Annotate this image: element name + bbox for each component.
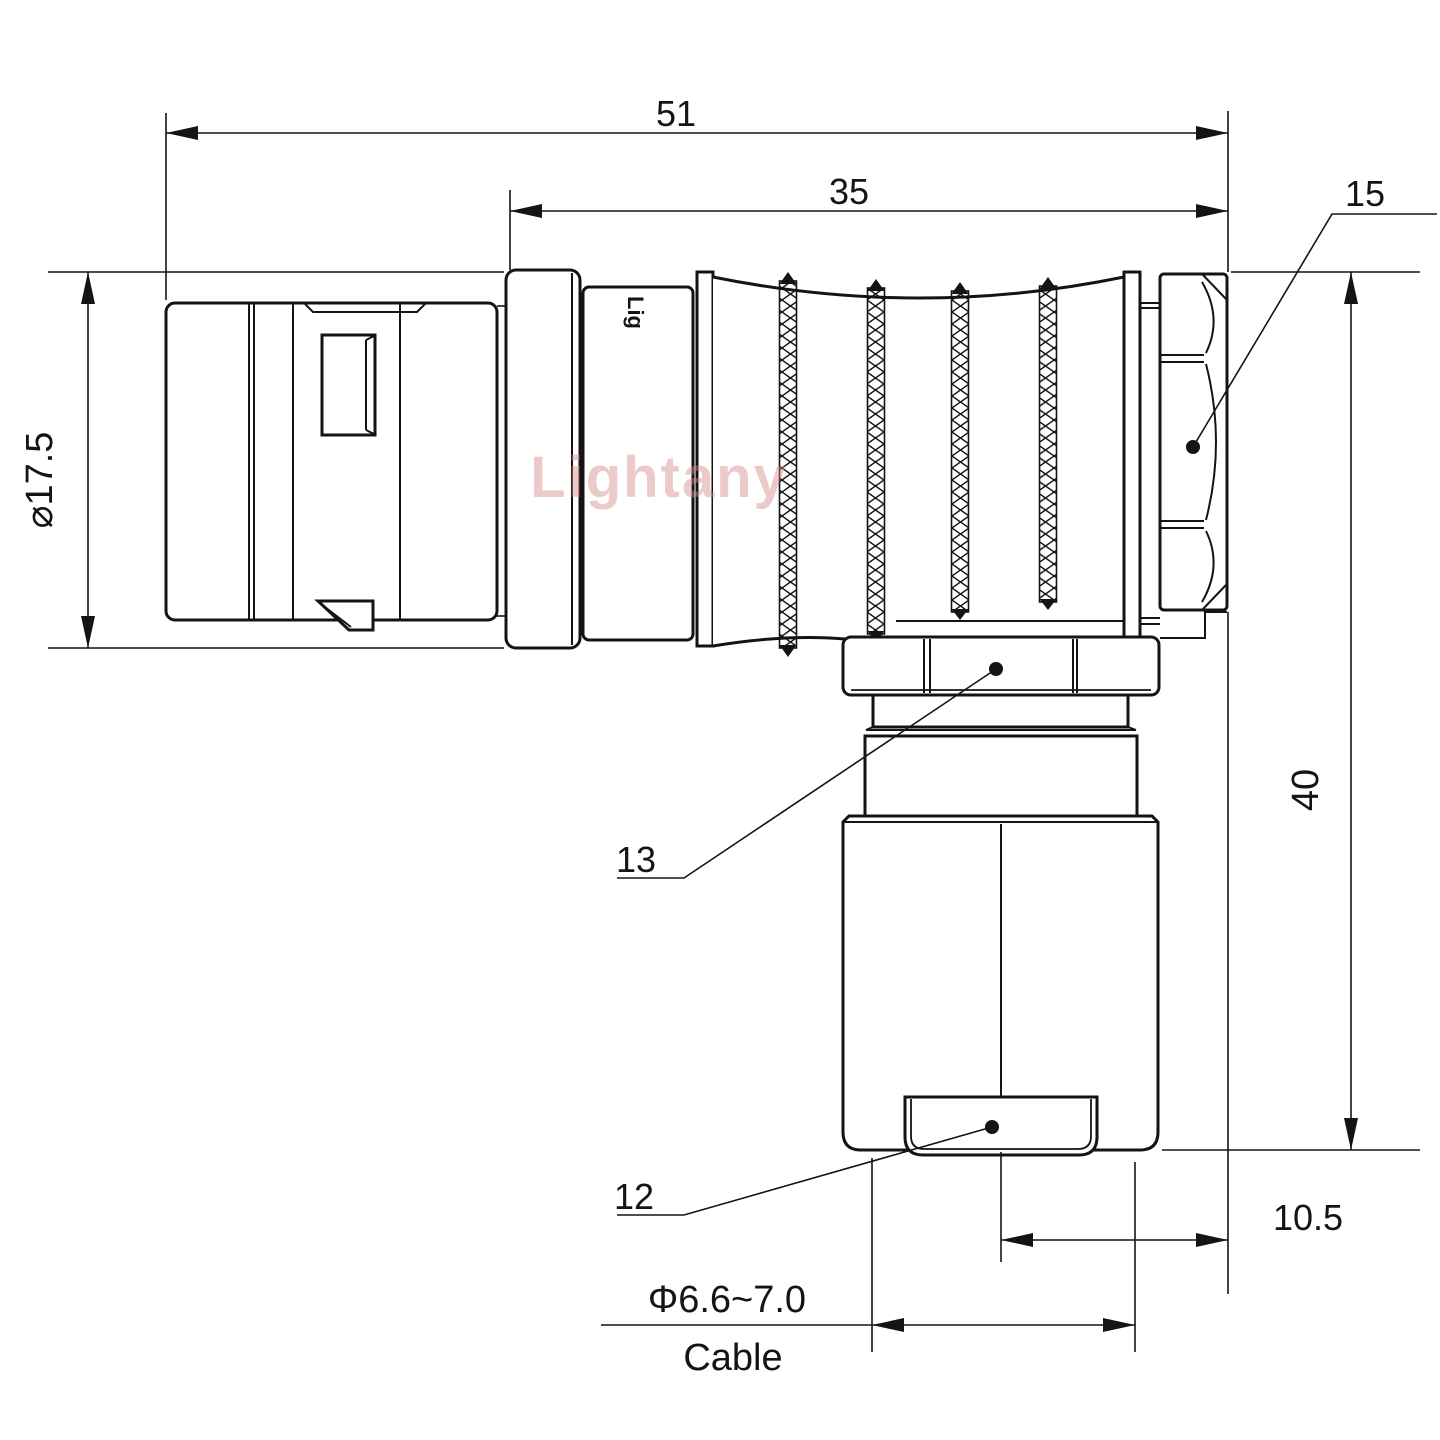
leader-dot-12 [985,1120,999,1134]
dim-overall-length: 51 [166,93,1228,140]
knurl-band [868,279,885,643]
end-hex-nut [1160,274,1227,638]
watermark-text: Lightany [530,445,788,510]
dim-backnut-offset: 10.5 [1001,1197,1343,1247]
flange-ring-right [1124,272,1140,646]
nut-step-edge [1160,612,1227,638]
body-marking-text: Lig [623,296,648,329]
part-13-label: 13 [616,839,656,880]
dim-10-5-label: 10.5 [1273,1197,1343,1238]
cable-diameter-label: Φ6.6~7.0 [648,1279,806,1321]
dim-51-label: 51 [656,93,696,134]
part-15-label: 15 [1345,173,1385,214]
dim-shell-length: 35 [510,171,1228,218]
technical-drawing-canvas: Lig [0,0,1440,1440]
cable-bush [905,1097,1097,1155]
leader-dot-15 [1186,440,1200,454]
dim-elbow-height: 40 [1285,272,1358,1150]
connector-vertical-body [843,637,1159,1155]
dim-40-label: 40 [1285,769,1327,811]
knurl-band [1040,277,1057,610]
plug-barrel [166,303,506,630]
drawing-page: Lig [0,0,1440,1440]
barrel-keyway [322,335,375,435]
leader-dot-13 [989,662,1003,676]
dim-35-label: 35 [829,171,869,212]
knurl-band [952,282,969,620]
elbow-shoulder [865,736,1137,816]
dim-cable: Φ6.6~7.0 Cable [601,1279,1135,1379]
part-12-label: 12 [614,1176,654,1217]
dim-shell-diameter: ⌀17.5 [19,272,95,648]
dim-diameter-label: ⌀17.5 [19,432,61,529]
end-neck [1140,303,1160,624]
cable-word-label: Cable [683,1337,782,1379]
